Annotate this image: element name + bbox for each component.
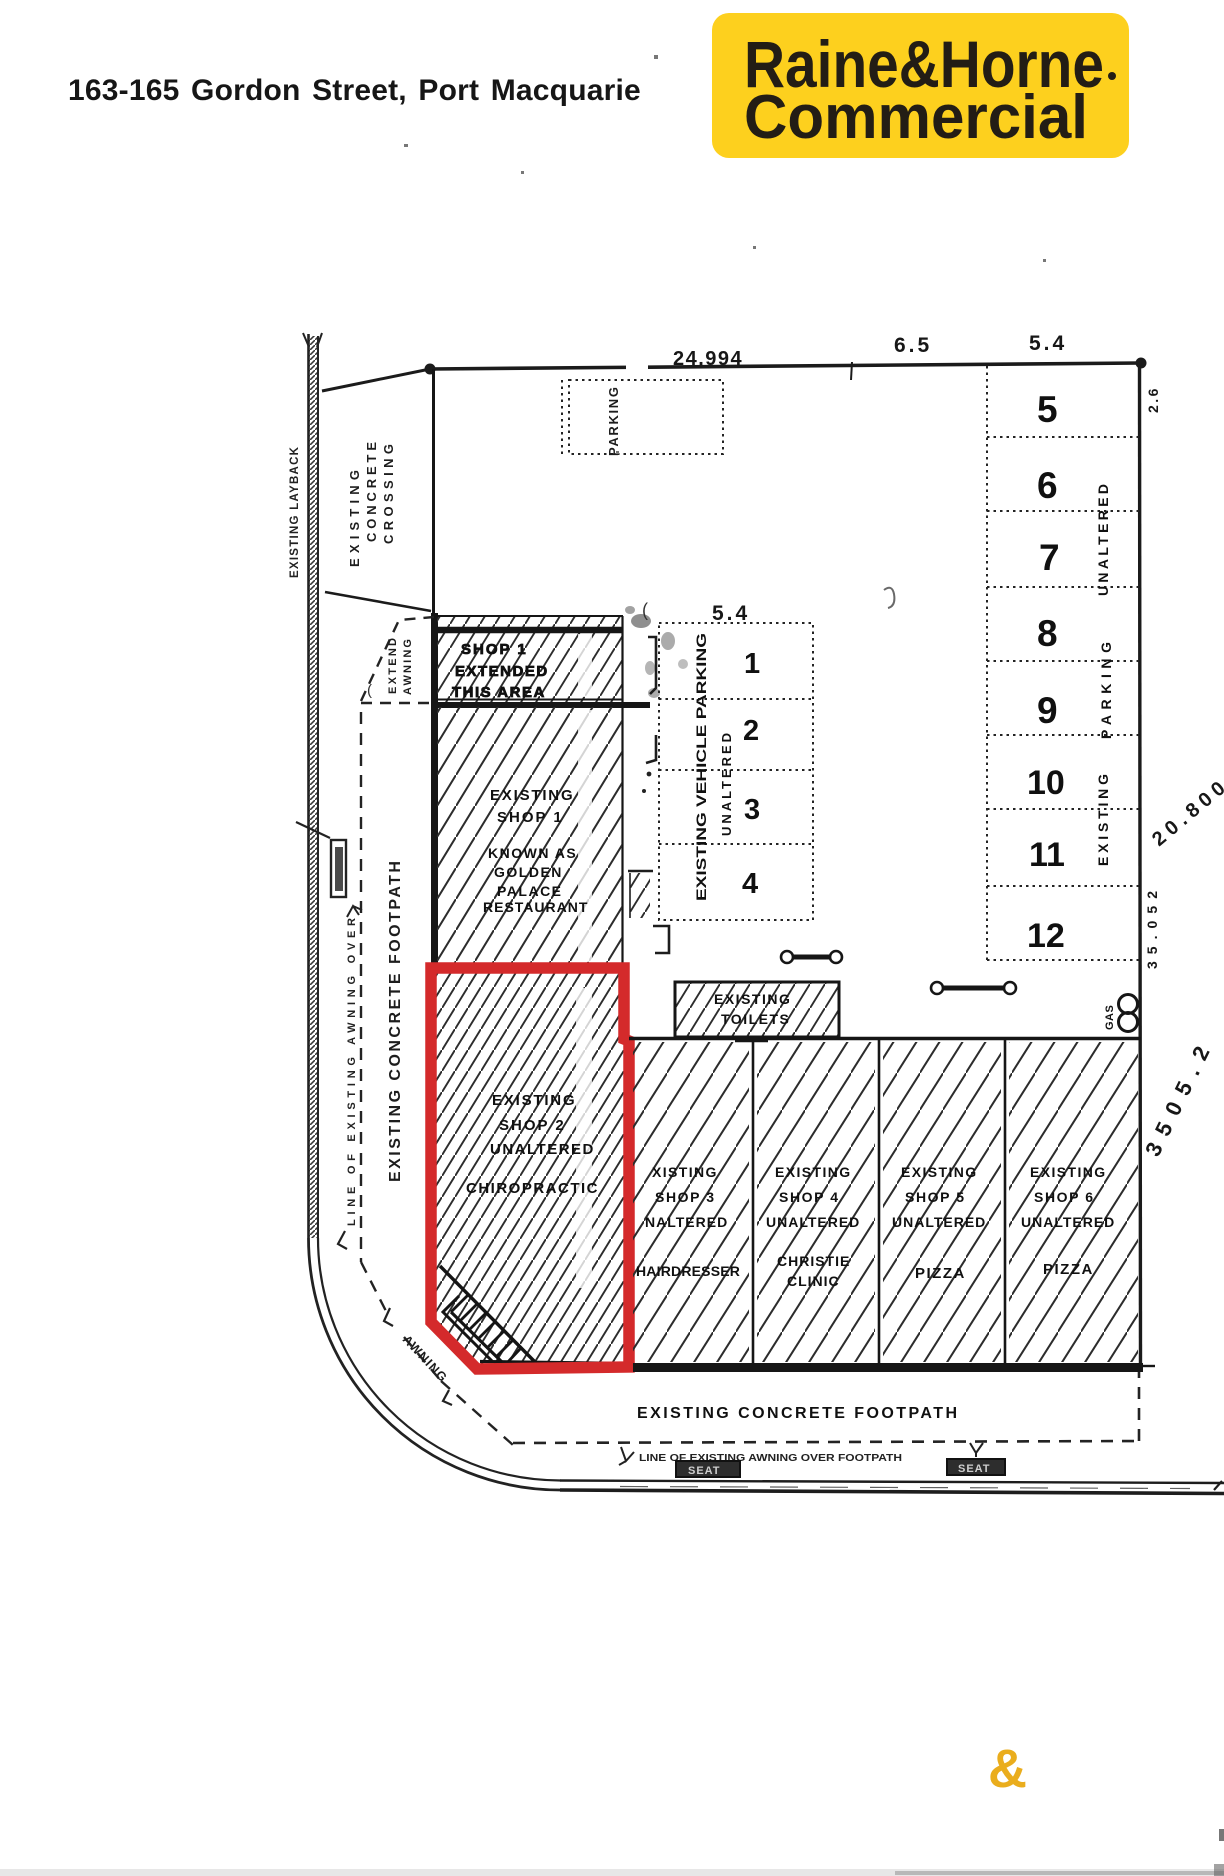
svg-text:GAS: GAS	[1104, 1005, 1116, 1030]
svg-text:(: (	[367, 682, 372, 699]
svg-text:SHOP 5: SHOP 5	[905, 1189, 966, 1205]
svg-text:KNOWN AS: KNOWN AS	[488, 845, 577, 861]
svg-text:UNALTERED: UNALTERED	[892, 1214, 986, 1230]
svg-text:RESTAURANT: RESTAURANT	[483, 899, 588, 915]
svg-text:UNALTERED: UNALTERED	[490, 1141, 595, 1158]
svg-text:10: 10	[1027, 764, 1065, 802]
svg-text:SHOP 4: SHOP 4	[779, 1189, 840, 1205]
svg-text:EXISTING: EXISTING	[775, 1164, 852, 1180]
svg-text:UNALTERED: UNALTERED	[719, 733, 734, 836]
svg-text:24.994: 24.994	[673, 348, 743, 370]
svg-text:EXISTING: EXISTING	[492, 1092, 576, 1109]
svg-text:PIZZA: PIZZA	[915, 1265, 966, 1282]
svg-text:CHIROPRACTIC: CHIROPRACTIC	[466, 1180, 599, 1197]
svg-text:NALTERED: NALTERED	[645, 1214, 728, 1230]
svg-text:(: (	[642, 600, 648, 620]
svg-text:UNALTERED: UNALTERED	[766, 1214, 860, 1230]
svg-text:CROSSING: CROSSING	[381, 444, 396, 544]
svg-text:THIS AREA: THIS AREA	[452, 684, 546, 701]
svg-text:11: 11	[1029, 836, 1065, 874]
svg-text:PALACE: PALACE	[497, 883, 563, 899]
svg-text:UNALTERED: UNALTERED	[1021, 1214, 1115, 1230]
svg-text:PARKING: PARKING	[606, 387, 621, 456]
svg-text:2.6: 2.6	[1145, 386, 1161, 413]
svg-text:1: 1	[744, 648, 760, 680]
svg-text:3: 3	[744, 794, 760, 826]
svg-text:163-165 Gordon Street, Port Ma: 163-165 Gordon Street, Port Macquarie	[68, 74, 641, 107]
svg-text:LINE OF EXISTING AWNING OVER: LINE OF EXISTING AWNING OVER	[346, 918, 358, 1226]
svg-text:2: 2	[743, 715, 759, 747]
svg-text:EXISTING VEHICLE PARKING: EXISTING VEHICLE PARKING	[694, 633, 709, 901]
svg-text:9: 9	[1037, 690, 1058, 731]
svg-text:CLINIC: CLINIC	[787, 1273, 840, 1289]
svg-text:SHOP 6: SHOP 6	[1034, 1189, 1095, 1205]
svg-text:EXISTING: EXISTING	[1030, 1164, 1107, 1180]
svg-text:GOLDEN: GOLDEN	[494, 864, 563, 880]
svg-text:5.4: 5.4	[712, 602, 750, 625]
svg-text:EXISTING CONCRETE FOOTPATH: EXISTING CONCRETE FOOTPATH	[637, 1405, 957, 1422]
svg-text:SHOP 3: SHOP 3	[655, 1189, 716, 1205]
svg-text:4: 4	[742, 868, 758, 900]
svg-text:EXISTING: EXISTING	[490, 787, 574, 804]
svg-text:Commercial: Commercial	[744, 83, 1088, 152]
svg-text:SHOP 2: SHOP 2	[499, 1117, 566, 1134]
svg-text:EXISTING: EXISTING	[901, 1164, 978, 1180]
svg-text:XISTING: XISTING	[652, 1164, 718, 1180]
svg-text:&: &	[988, 1739, 1027, 1799]
svg-text:PIZZA: PIZZA	[1043, 1261, 1094, 1278]
svg-text:5.4: 5.4	[1029, 332, 1067, 355]
svg-text:TOILETS: TOILETS	[721, 1011, 790, 1027]
svg-text:EXTENDED: EXTENDED	[455, 663, 549, 680]
svg-text:EXISTING CONCRETE FOOTPATH: EXISTING CONCRETE FOOTPATH	[387, 861, 404, 1182]
svg-text:5: 5	[1037, 389, 1058, 430]
svg-text:SHOP 1: SHOP 1	[497, 809, 564, 826]
svg-text:12: 12	[1027, 917, 1065, 955]
svg-text:7: 7	[1039, 537, 1060, 578]
svg-text:SEAT: SEAT	[958, 1463, 991, 1475]
svg-text:8: 8	[1037, 613, 1058, 654]
svg-text:CHRISTIE: CHRISTIE	[777, 1253, 850, 1269]
svg-text:SEAT: SEAT	[688, 1465, 721, 1477]
svg-text:EXISTING: EXISTING	[714, 991, 791, 1007]
svg-text:HAIRDRESSER: HAIRDRESSER	[636, 1263, 740, 1279]
svg-text:UNALTERED: UNALTERED	[1095, 484, 1111, 596]
svg-text:6.5: 6.5	[894, 334, 932, 357]
svg-text:SHOP 1: SHOP 1	[461, 641, 528, 658]
svg-text:6: 6	[1037, 465, 1058, 506]
